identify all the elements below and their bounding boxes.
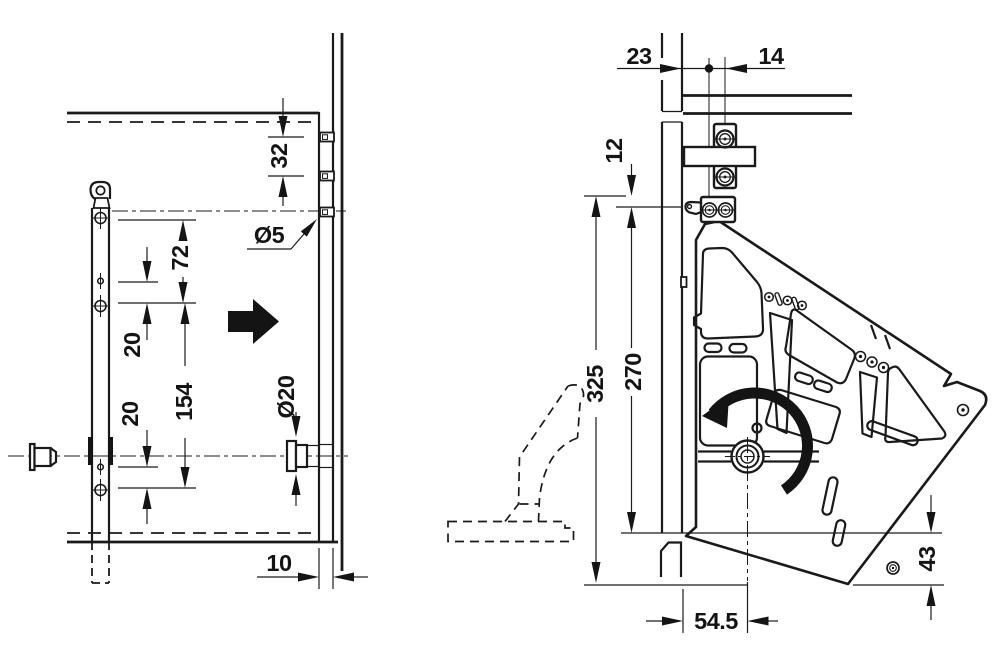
wall-plug	[30, 444, 56, 470]
rail-holes	[93, 207, 108, 501]
lever-top-fitting	[686, 197, 737, 222]
dim-20-top: 20	[119, 247, 152, 358]
dim-label-12: 12	[601, 138, 627, 164]
dim-23-14: 23 14	[617, 43, 785, 73]
dim-20-bottom: 20	[117, 401, 152, 524]
rail-hook	[91, 182, 111, 199]
dim-12: 12	[601, 138, 636, 196]
right-view-side: 23 14 12 325	[448, 33, 986, 634]
dim-label-20-bottom: 20	[117, 401, 143, 427]
dim-label-43: 43	[914, 546, 940, 572]
rail-clamp-right	[108, 437, 113, 465]
left-view-front: 32 Ø5 72	[8, 33, 368, 589]
dim-154: 154	[171, 303, 197, 488]
rail-clamp-left	[88, 437, 93, 465]
dim-label-23: 23	[626, 43, 652, 69]
dim-label-20-top: 20	[119, 332, 145, 358]
dim-label-14: 14	[758, 43, 784, 69]
dim-label-72: 72	[167, 245, 193, 271]
dim-325: 325	[582, 196, 608, 583]
dim-label-270: 270	[620, 353, 646, 391]
profile-pin	[681, 277, 687, 287]
dim-43: 43	[914, 495, 940, 620]
dim-o5: Ø5	[247, 219, 317, 249]
dim-270: 270	[620, 207, 646, 533]
ghost-folded-flap	[448, 385, 584, 542]
dim-label-32: 32	[266, 143, 292, 169]
rail-hook-eye	[96, 186, 104, 194]
insert-direction-arrow-icon	[228, 299, 279, 344]
dim-dot-terminator	[705, 64, 713, 72]
profile-foot	[661, 543, 681, 578]
installation-diagram: 32 Ø5 72	[0, 0, 1000, 667]
dim-label-o5: Ø5	[254, 222, 285, 248]
mounting-rail	[88, 182, 113, 583]
dim-label-325: 325	[582, 365, 608, 403]
dim-label-10: 10	[266, 550, 292, 576]
technical-drawing-page: 32 Ø5 72	[0, 0, 1000, 667]
dim-10: 10	[257, 548, 368, 589]
dim-label-154: 154	[171, 383, 197, 421]
dim-label-o20: Ø20	[273, 375, 299, 418]
dim-54-5: 54.5	[646, 582, 778, 634]
cabinet-side-panel	[661, 33, 687, 577]
rail-hook-base	[94, 198, 110, 208]
dim-label-54-5: 54.5	[694, 608, 738, 634]
dim-72: 72	[167, 220, 193, 303]
